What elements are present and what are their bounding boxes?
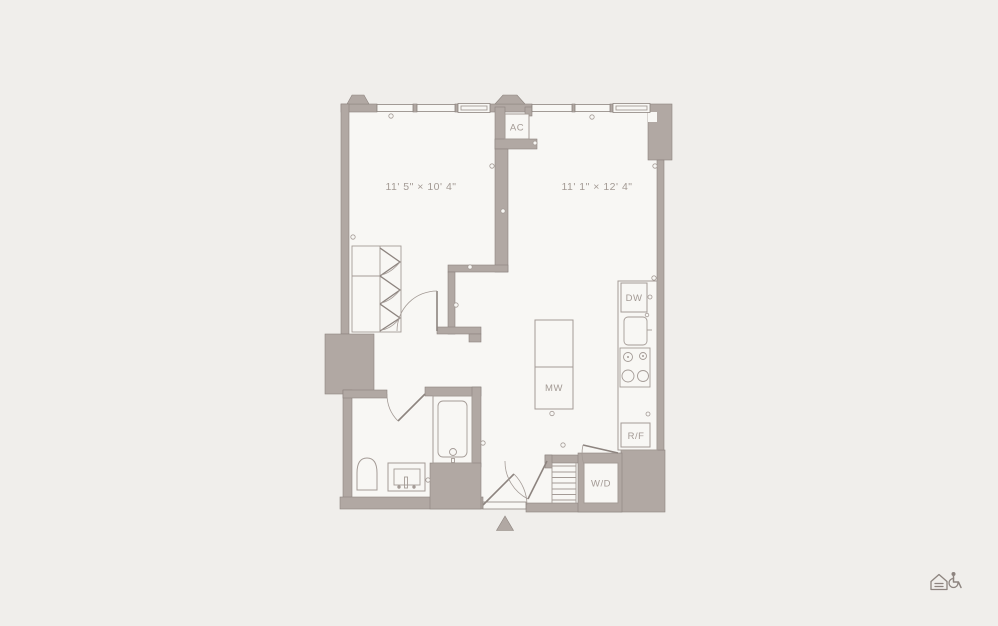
ac-label: AC [510, 123, 524, 134]
toilet [357, 458, 377, 490]
kitchen-island: MW [535, 320, 573, 416]
accessible-icon [949, 572, 961, 588]
refrigerator: R/F [621, 423, 650, 447]
living-room-dimensions: 11' 1" × 12' 4" [561, 181, 632, 193]
vanity-sink [388, 463, 430, 491]
bedroom-dimensions: 11' 5" × 10' 4" [385, 181, 456, 193]
window [532, 105, 572, 112]
bathtub [433, 396, 472, 463]
washer-dryer-label: W/D [591, 479, 611, 490]
microwave-label: MW [545, 383, 563, 394]
entry-arrow [497, 516, 514, 531]
window-framed [613, 104, 650, 113]
refrigerator-label: R/F [628, 431, 645, 442]
equal-housing-icon [931, 575, 947, 590]
dishwasher-label: DW [626, 293, 643, 304]
floor-plan-drawing: AC 11' 5" × 10' 4" 11' 1" × 12' 4" [0, 0, 998, 626]
washer-dryer: W/D [584, 463, 618, 503]
floor-plan-page: AC 11' 5" × 10' 4" 11' 1" × 12' 4" [0, 0, 998, 626]
entry-threshold [483, 502, 526, 509]
dishwasher: DW [621, 283, 652, 312]
window [575, 105, 610, 112]
window [377, 105, 413, 112]
window-framed [458, 104, 490, 113]
window [417, 105, 455, 112]
